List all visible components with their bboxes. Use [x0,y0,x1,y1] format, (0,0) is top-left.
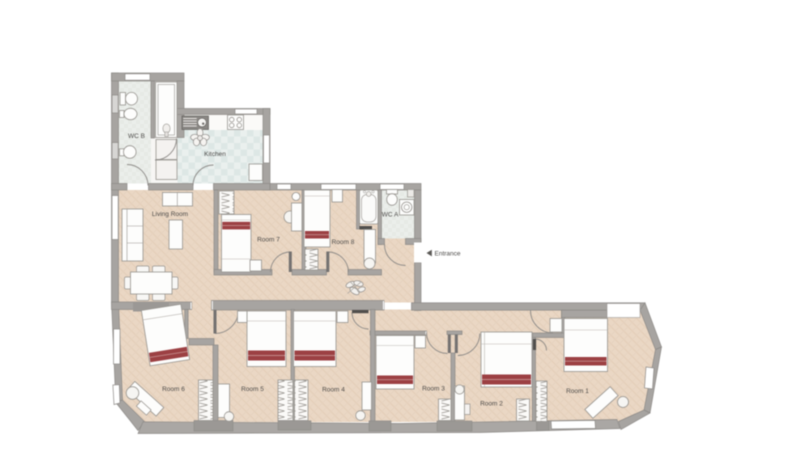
svg-text:Room 1: Room 1 [566,388,589,395]
svg-text:Room 3: Room 3 [422,386,445,393]
svg-text:Entrance: Entrance [435,251,461,258]
svg-text:Room 7: Room 7 [257,237,280,244]
svg-text:Room 5: Room 5 [241,386,264,393]
svg-text:Kitchen: Kitchen [204,151,226,158]
svg-text:Living Room: Living Room [152,211,188,218]
svg-text:Room 2: Room 2 [480,401,503,408]
svg-text:WC B: WC B [128,133,145,140]
svg-text:Room 8: Room 8 [332,239,355,246]
svg-text:Room 6: Room 6 [162,386,185,393]
svg-text:WC A: WC A [382,211,399,218]
svg-text:Room 4: Room 4 [322,387,345,394]
